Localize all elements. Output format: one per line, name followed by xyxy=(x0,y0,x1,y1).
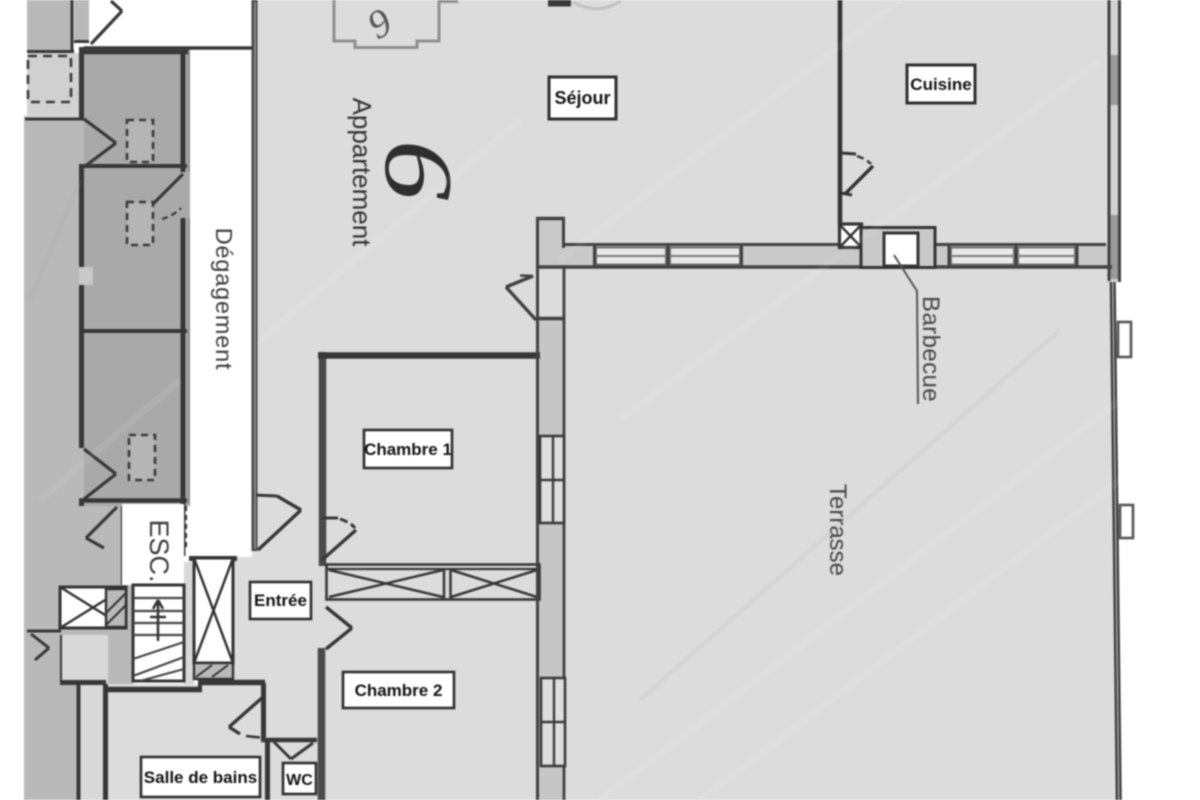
svg-text:Dégagement: Dégagement xyxy=(211,228,237,371)
svg-text:Entrée: Entrée xyxy=(254,591,307,610)
svg-text:Chambre 1: Chambre 1 xyxy=(364,440,452,459)
svg-text:Salle de bains: Salle de bains xyxy=(144,768,257,787)
svg-text:Barbecue: Barbecue xyxy=(917,296,944,402)
svg-text:WC: WC xyxy=(286,772,313,789)
svg-text:Cuisine: Cuisine xyxy=(910,75,971,94)
svg-text:ESC.: ESC. xyxy=(144,519,174,582)
svg-text:Séjour: Séjour xyxy=(554,88,610,108)
svg-text:Chambre 2: Chambre 2 xyxy=(355,681,443,700)
svg-text:Terrasse: Terrasse xyxy=(824,484,851,576)
